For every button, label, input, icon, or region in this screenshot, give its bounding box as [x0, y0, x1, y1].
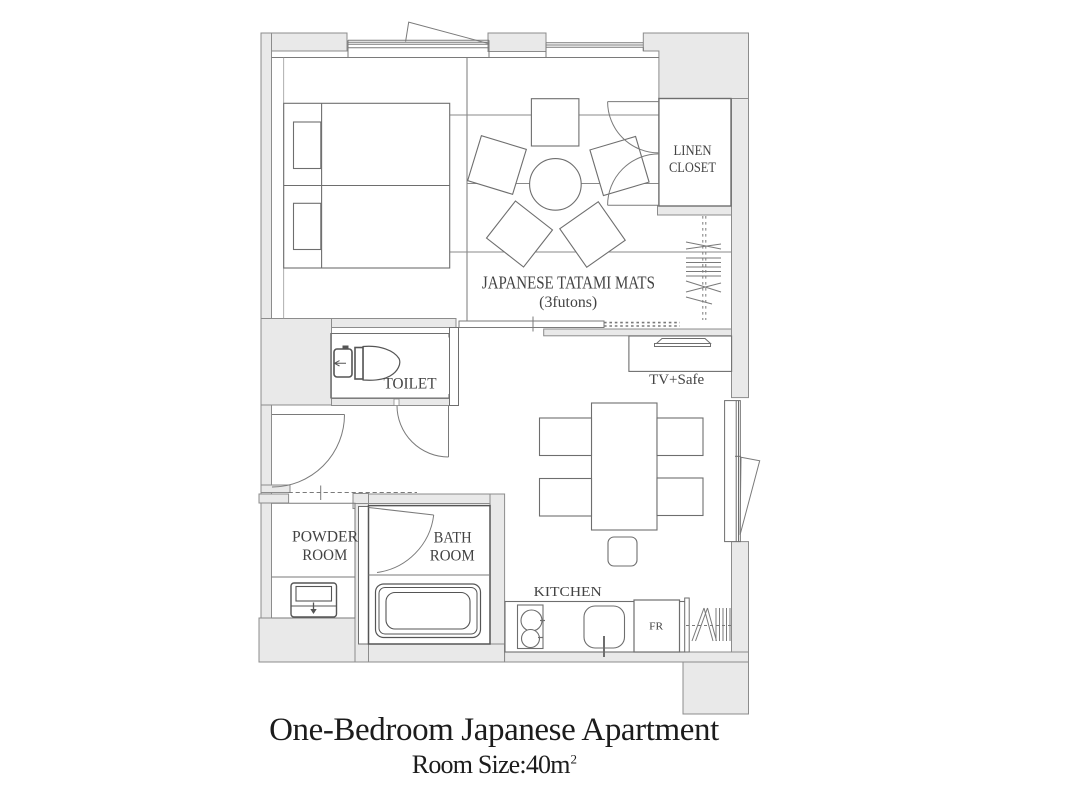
svg-text:POWDER: POWDER	[292, 529, 359, 546]
svg-text:TV+Safe: TV+Safe	[649, 372, 704, 388]
svg-text:JAPANESE TATAMI MATS: JAPANESE TATAMI MATS	[482, 273, 655, 293]
svg-text:(3futons): (3futons)	[539, 294, 597, 311]
svg-text:CLOSET: CLOSET	[669, 160, 716, 176]
svg-text:FR: FR	[649, 621, 663, 632]
svg-text:KITCHEN: KITCHEN	[534, 585, 602, 600]
svg-text:BATH: BATH	[434, 530, 472, 547]
svg-text:ROOM: ROOM	[430, 547, 475, 564]
svg-text:TOILET: TOILET	[384, 376, 438, 393]
svg-text:LINEN: LINEN	[674, 143, 712, 159]
svg-text:ROOM: ROOM	[302, 547, 347, 564]
